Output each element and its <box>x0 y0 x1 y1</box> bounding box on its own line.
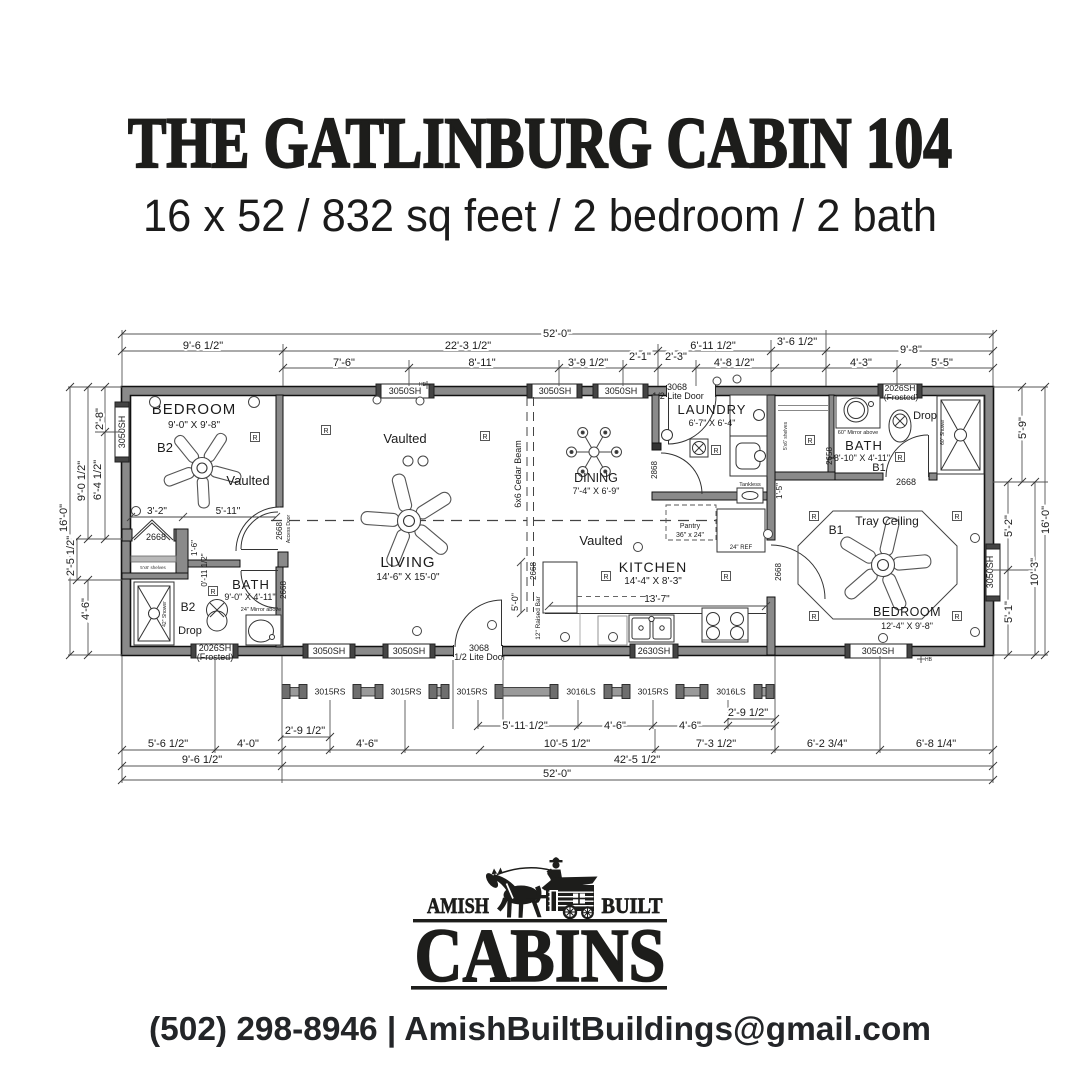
svg-text:2'-9 1/2": 2'-9 1/2" <box>728 707 768 719</box>
svg-text:Access Door: Access Door <box>286 514 292 543</box>
svg-text:52'-0": 52'-0" <box>543 328 571 340</box>
svg-text:24" REF: 24" REF <box>730 545 753 551</box>
svg-text:16'-0": 16'-0" <box>58 504 70 532</box>
svg-text:1/2 Lite Door: 1/2 Lite Door <box>454 652 506 662</box>
svg-text:Tray Ceiling: Tray Ceiling <box>855 514 919 528</box>
svg-text:8'-11": 8'-11" <box>468 357 495 369</box>
svg-text:10'-5 1/2": 10'-5 1/2" <box>544 738 590 750</box>
svg-text:BATH: BATH <box>232 577 270 592</box>
svg-text:6'-4 1/2": 6'-4 1/2" <box>92 460 104 500</box>
svg-text:4'-6": 4'-6" <box>356 738 378 750</box>
svg-text:4'-8 1/2": 4'-8 1/2" <box>714 357 754 369</box>
svg-text:3016LS: 3016LS <box>566 687 596 697</box>
svg-text:7'-6": 7'-6" <box>333 357 355 369</box>
svg-text:3'-9 1/2": 3'-9 1/2" <box>568 357 608 369</box>
svg-text:B2: B2 <box>157 440 173 455</box>
svg-text:2630SH: 2630SH <box>638 646 671 656</box>
svg-text:5'-1": 5'-1" <box>1003 601 1015 623</box>
svg-text:9'-0" X 9'-8": 9'-0" X 9'-8" <box>168 420 221 431</box>
svg-text:14'-6" X 15'-0": 14'-6" X 15'-0" <box>376 572 440 583</box>
svg-text:R: R <box>723 574 728 581</box>
svg-text:Vaulted: Vaulted <box>579 533 622 548</box>
svg-text:3050SH: 3050SH <box>539 386 572 396</box>
svg-text:5'-0": 5'-0" <box>510 593 520 611</box>
svg-text:9'-6 1/2": 9'-6 1/2" <box>183 340 223 352</box>
svg-text:Tankless: Tankless <box>739 482 761 488</box>
svg-text:1'-5": 1'-5" <box>775 483 784 499</box>
svg-text:3050SH: 3050SH <box>605 386 638 396</box>
svg-text:9'-8": 9'-8" <box>900 344 922 356</box>
svg-text:HB: HB <box>925 657 933 663</box>
svg-text:42" Shower: 42" Shower <box>162 601 168 627</box>
svg-text:R: R <box>713 448 718 455</box>
svg-text:5'-9": 5'-9" <box>1017 417 1029 439</box>
svg-text:3050SH: 3050SH <box>313 646 346 656</box>
svg-text:5'-5": 5'-5" <box>931 357 953 369</box>
svg-text:THE GATLINBURG CABIN 104: THE GATLINBURG CABIN 104 <box>128 103 952 183</box>
svg-text:14'-4" X 8'-3": 14'-4" X 8'-3" <box>624 576 682 587</box>
svg-text:7'-4" X 6'-9": 7'-4" X 6'-9" <box>573 486 620 496</box>
svg-text:3015RS: 3015RS <box>638 687 669 697</box>
svg-text:(Frosted): (Frosted) <box>884 392 919 402</box>
svg-text:3015RS: 3015RS <box>315 687 346 697</box>
svg-text:CABINS: CABINS <box>415 914 666 998</box>
svg-text:2'-1": 2'-1" <box>629 351 651 363</box>
svg-text:2'-3": 2'-3" <box>665 351 687 363</box>
svg-text:3050SH: 3050SH <box>393 646 426 656</box>
svg-text:2868: 2868 <box>650 461 659 479</box>
svg-text:2658: 2658 <box>825 447 834 465</box>
svg-text:R: R <box>897 455 902 462</box>
svg-text:3016LS: 3016LS <box>716 687 746 697</box>
svg-text:5'-6 1/2": 5'-6 1/2" <box>148 738 188 750</box>
svg-text:6'-8 1/4": 6'-8 1/4" <box>916 738 956 750</box>
svg-text:6x6 Cedar Beam: 6x6 Cedar Beam <box>513 440 523 508</box>
svg-text:4'-3": 4'-3" <box>850 357 872 369</box>
svg-text:0'-11 1/2": 0'-11 1/2" <box>200 553 209 586</box>
svg-text:LIVING: LIVING <box>380 554 435 571</box>
svg-text:9'-0" X 4'-11": 9'-0" X 4'-11" <box>224 592 275 602</box>
svg-text:R: R <box>210 589 215 596</box>
svg-text:12'-4" X 9'-8": 12'-4" X 9'-8" <box>881 621 933 631</box>
svg-text:5'x6' shelves: 5'x6' shelves <box>140 565 166 570</box>
svg-text:Drop: Drop <box>913 410 937 422</box>
svg-text:2668: 2668 <box>774 563 783 581</box>
svg-text:R: R <box>323 428 328 435</box>
svg-text:3'-6 1/2": 3'-6 1/2" <box>777 336 817 348</box>
svg-text:R: R <box>811 514 816 521</box>
svg-text:R: R <box>252 435 257 442</box>
svg-text:4'-6": 4'-6" <box>80 598 92 620</box>
svg-text:22'-3 1/2": 22'-3 1/2" <box>445 340 491 352</box>
svg-text:5'x6' shelves: 5'x6' shelves <box>783 421 789 450</box>
svg-text:36" x 24": 36" x 24" <box>676 532 704 539</box>
svg-text:B2: B2 <box>181 600 196 614</box>
svg-text:BEDROOM: BEDROOM <box>873 605 941 619</box>
svg-text:3015RS: 3015RS <box>457 687 488 697</box>
svg-text:12" Raised Bar: 12" Raised Bar <box>535 595 542 639</box>
svg-text:2668: 2668 <box>896 477 916 487</box>
svg-text:R: R <box>603 574 608 581</box>
svg-text:BATH: BATH <box>845 438 883 453</box>
svg-text:52'-0": 52'-0" <box>543 768 571 780</box>
svg-text:KITCHEN: KITCHEN <box>619 559 687 575</box>
svg-text:Vaulted: Vaulted <box>383 431 426 446</box>
svg-text:16'-0": 16'-0" <box>1040 506 1052 534</box>
svg-text:1/2 Lite Door: 1/2 Lite Door <box>652 391 704 401</box>
svg-text:6'-7" X 6'-4": 6'-7" X 6'-4" <box>689 418 736 428</box>
svg-text:Vaulted: Vaulted <box>226 473 269 488</box>
svg-text:42'-5 1/2": 42'-5 1/2" <box>614 754 660 766</box>
svg-text:60" Mirror above: 60" Mirror above <box>838 430 878 436</box>
svg-text:Drop: Drop <box>178 625 202 637</box>
svg-text:24" Mirror above: 24" Mirror above <box>241 607 281 613</box>
svg-text:LAUNDRY: LAUNDRY <box>678 402 747 417</box>
svg-text:3050SH: 3050SH <box>389 386 422 396</box>
svg-text:2668: 2668 <box>146 532 166 542</box>
svg-text:R: R <box>482 434 487 441</box>
svg-text:9'-0 1/2": 9'-0 1/2" <box>76 461 88 501</box>
svg-text:R: R <box>811 614 816 621</box>
svg-text:2'-5 1/2": 2'-5 1/2" <box>65 536 77 576</box>
svg-text:2668: 2668 <box>275 522 284 540</box>
svg-text:R: R <box>954 614 959 621</box>
svg-text:2668: 2668 <box>279 581 288 599</box>
svg-text:R: R <box>807 438 812 445</box>
svg-text:3050SH: 3050SH <box>985 556 995 589</box>
svg-text:DINING: DINING <box>574 471 618 485</box>
svg-text:3'-2": 3'-2" <box>147 506 167 517</box>
svg-text:13'-7": 13'-7" <box>644 594 670 605</box>
svg-text:5'-2": 5'-2" <box>1003 515 1015 537</box>
svg-text:B1: B1 <box>872 462 885 474</box>
svg-text:9'-6 1/2": 9'-6 1/2" <box>182 754 222 766</box>
svg-text:BEDROOM: BEDROOM <box>152 401 237 418</box>
svg-text:R: R <box>954 514 959 521</box>
svg-text:5'-11": 5'-11" <box>216 506 241 517</box>
svg-text:1'-6": 1'-6" <box>190 540 199 556</box>
svg-text:6'-11 1/2": 6'-11 1/2" <box>690 340 736 352</box>
svg-text:3015RS: 3015RS <box>391 687 422 697</box>
svg-text:6'-2 3/4": 6'-2 3/4" <box>807 738 847 750</box>
svg-text:60" Shower: 60" Shower <box>940 419 946 445</box>
svg-text:Pantry: Pantry <box>680 523 701 530</box>
svg-text:3050SH: 3050SH <box>862 646 895 656</box>
svg-text:4'-6": 4'-6" <box>679 720 701 732</box>
svg-text:4'-0": 4'-0" <box>237 738 259 750</box>
svg-text:(502) 298-8946 | AmishBuiltBui: (502) 298-8946 | AmishBuiltBuildings@gma… <box>149 1010 931 1047</box>
svg-text:2668: 2668 <box>529 562 538 580</box>
svg-text:2'-8": 2'-8" <box>94 408 106 430</box>
svg-text:4'-6": 4'-6" <box>604 720 626 732</box>
svg-text:16 x 52 / 832 sq feet / 2 bedr: 16 x 52 / 832 sq feet / 2 bedroom / 2 ba… <box>143 190 937 241</box>
svg-text:10'-3": 10'-3" <box>1029 558 1041 586</box>
svg-text:2'-9 1/2": 2'-9 1/2" <box>285 725 325 737</box>
svg-text:B1: B1 <box>829 523 844 537</box>
svg-text:5'-11 1/2": 5'-11 1/2" <box>502 720 548 732</box>
svg-text:7'-3 1/2": 7'-3 1/2" <box>696 738 736 750</box>
